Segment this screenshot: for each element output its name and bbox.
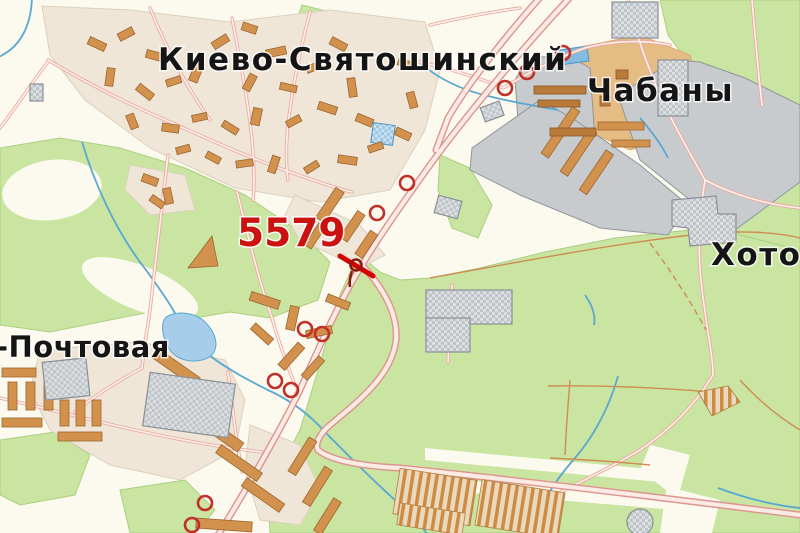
place-label-pochtovaya: -Почтовая [0,330,170,364]
map-canvas[interactable]: Киево-Святошинский Чабаны Хотов -Почтова… [0,0,800,533]
place-label-chabany: Чабаны [587,73,734,109]
place-label-khotov: Хотов [711,237,800,273]
place-label-district: Киево-Святошинский [158,42,567,78]
route-number-label: 5579 [237,211,346,256]
